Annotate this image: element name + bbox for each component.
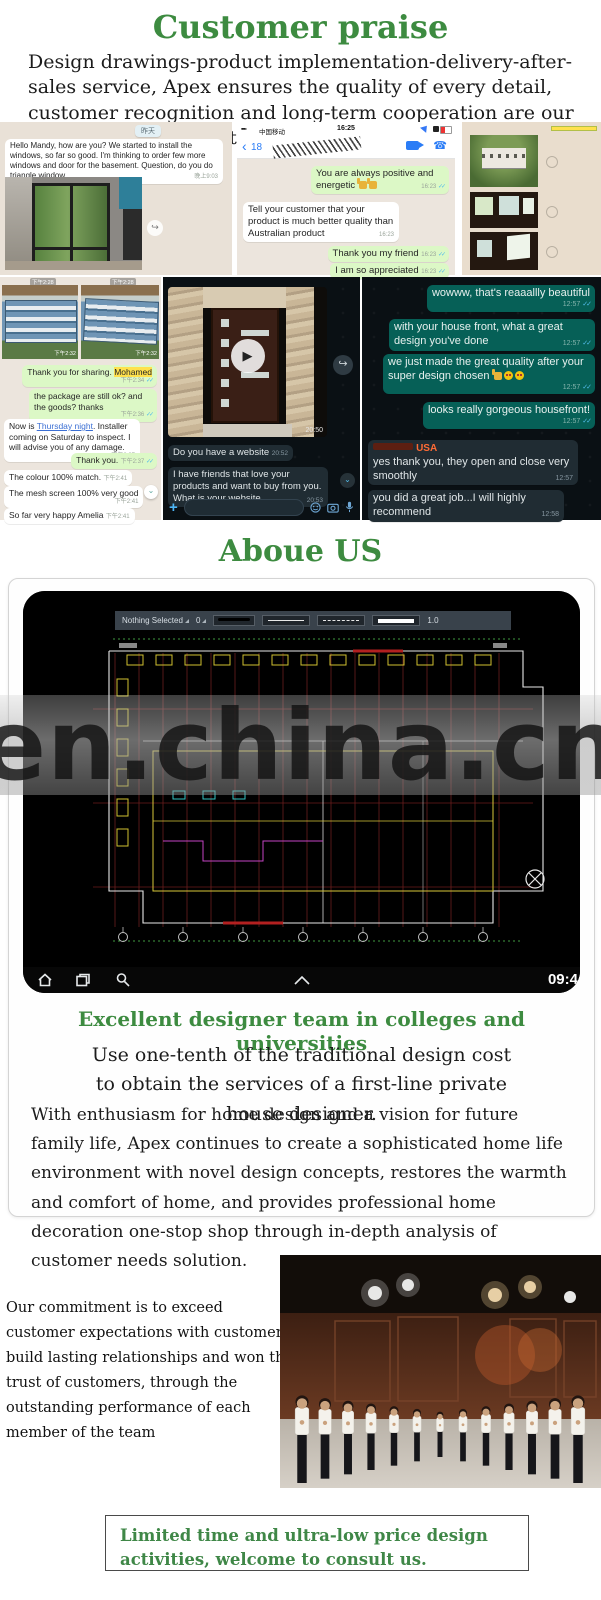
watermark-band: en.china.cn	[0, 695, 601, 795]
message-text: looks really gorgeous housefront!	[428, 404, 590, 416]
message-time: 12:57 ✓✓	[432, 301, 590, 310]
read-receipt-icon: ✓✓	[582, 384, 590, 391]
forward-icon[interactable]: ↪	[147, 220, 163, 236]
read-receipt-icon: ✓✓	[582, 301, 590, 308]
photo-timestamp: 下午2:32	[135, 349, 157, 357]
voice-call-icon[interactable]: ☎	[433, 139, 447, 152]
house	[482, 148, 526, 168]
message-text: Now is	[9, 421, 37, 431]
message-text: Tell your customer that your product is …	[248, 204, 393, 239]
highlighted-name: Mohamed	[114, 367, 152, 377]
promo-text: Limited time and ultra-low price design …	[120, 1524, 514, 1572]
chat-bubble-outgoing: wowww, that's reaaallly beautiful 12:57 …	[427, 285, 595, 312]
dropdown-triangle-icon	[185, 619, 189, 623]
interior-photo[interactable]	[470, 232, 538, 270]
message-text: I am so appreciated	[335, 265, 418, 276]
message-time: 20:52	[272, 450, 288, 457]
chat-bubble-outgoing: we just made the great quality after you…	[383, 354, 595, 394]
chat-screenshot-feedback: 下午2:28 下午2:28 下午2:32 下午2:32 Thank you fo…	[0, 277, 161, 520]
message-text: Thank you for sharing.	[27, 367, 114, 377]
scale-value: 1.0	[427, 616, 438, 625]
window	[499, 196, 519, 216]
status-time: 16:25	[337, 125, 355, 132]
linetype-dashed[interactable]	[317, 615, 365, 626]
signal-icon: ▪▪▪▫	[241, 126, 246, 133]
chat-screenshot-installation: 昨天 Hello Mandy, how are you? We started …	[0, 122, 232, 275]
message-time: 12:57 ✓✓	[563, 340, 590, 349]
wall	[5, 177, 32, 270]
download-spinner-icon[interactable]	[546, 156, 558, 168]
heart-eyes-emoji	[515, 371, 524, 380]
message-text: Thank you.	[76, 455, 118, 465]
message-time: 16:23 ✓✓	[421, 184, 444, 192]
solid-line	[268, 620, 304, 621]
windows	[482, 154, 526, 158]
chat-bubble-outgoing: Thank you for sharing. Mohamed 下午2:34 ✓✓	[22, 365, 157, 387]
video-call-icon[interactable]	[406, 141, 419, 150]
message-text: we just made the great quality after you…	[388, 356, 584, 382]
doorstep	[203, 424, 292, 438]
location-arrow-icon	[420, 123, 430, 133]
unread-count: 18	[251, 142, 262, 153]
message-text: Do you have a website	[173, 447, 269, 458]
video-lens	[419, 142, 424, 148]
interior-photo[interactable]	[470, 192, 538, 228]
message-time: 12:57 ✓✓	[388, 384, 590, 393]
message-time: 下午2:41	[106, 514, 130, 520]
highlighted-label	[551, 126, 597, 131]
chat-bubble-incoming: you did a great job...I will highly reco…	[368, 490, 564, 522]
message-time: 12:58	[541, 511, 559, 520]
home-icon[interactable]	[37, 972, 53, 988]
back-icon[interactable]: ‹	[242, 138, 247, 154]
commitment-paragraph: Our commitment is to exceed customer exp…	[6, 1296, 296, 1446]
window-frames-photo[interactable]: 下午2:32	[2, 285, 78, 359]
date-link[interactable]: Thursday night	[37, 421, 93, 431]
window	[523, 198, 534, 213]
clock-label: 09:4	[548, 971, 578, 988]
forward-icon[interactable]: ↪	[333, 355, 353, 375]
sender-name: USA	[416, 443, 437, 454]
dropdown-triangle-icon	[202, 619, 206, 623]
chat-bubble-incoming: USA yes thank you, they open and close v…	[368, 440, 578, 485]
glass-bar	[241, 330, 269, 336]
layer-dropdown[interactable]: 0	[196, 616, 206, 625]
chat-nav-bar: ‹ 18 ☎	[237, 137, 455, 159]
watermark-text: en.china.cn	[0, 695, 601, 795]
glass-slits	[221, 319, 230, 408]
message-text: Hello Mandy, how are you? We started to …	[10, 141, 213, 180]
lintel	[203, 287, 286, 308]
message-time: 下午2:41	[9, 499, 138, 507]
color-swatch[interactable]	[213, 615, 255, 626]
redacted-sender-name	[373, 443, 413, 450]
camera-icon[interactable]	[327, 502, 339, 513]
linetype-solid[interactable]	[262, 615, 310, 626]
glass-door	[32, 183, 109, 267]
message-input[interactable]	[184, 499, 304, 516]
read-receipt-icon: ✓✓	[146, 412, 152, 418]
chat-bubble-incoming: So far very happy Amelia 下午2:41	[4, 508, 135, 524]
chat-bubble-incoming: Do you have a website 20:52	[168, 445, 293, 461]
message-time: 16:23	[379, 232, 394, 240]
message-time: 16:23 ✓✓	[421, 269, 444, 275]
thumbs-up-emoji	[359, 181, 367, 189]
lineweight[interactable]	[372, 615, 420, 626]
cabinet	[119, 177, 142, 209]
chat-screenshot-house-photos	[462, 122, 601, 275]
window	[477, 240, 492, 257]
stone-pillar	[286, 287, 315, 437]
message-text: So far very happy Amelia	[9, 510, 104, 520]
download-spinner-icon[interactable]	[546, 246, 558, 258]
read-receipt-icon: ✓✓	[438, 252, 444, 258]
dashed-line	[323, 620, 359, 621]
photo-timestamp: 下午2:32	[54, 349, 76, 357]
android-nav-bar: 09:4	[23, 967, 580, 993]
message-time: 16:23 ✓✓	[421, 252, 444, 258]
phone-status-bar: ▪▪▪▫ 中国移动 16:25	[237, 122, 455, 137]
orientation-lock-icon	[433, 126, 439, 132]
carrier-label: 中国移动	[259, 126, 285, 136]
chat-bubble-outgoing: Thank you my friend 16:23 ✓✓	[328, 246, 449, 262]
mic-icon[interactable]	[345, 501, 354, 513]
house-photo[interactable]	[470, 135, 538, 187]
chat-bubble-outgoing: You are always positive and energetic 16…	[311, 166, 449, 194]
chat-bubble-incoming: The colour 100% match. 下午2:41	[4, 470, 132, 486]
heart-eyes-emoji	[504, 371, 513, 380]
thumbs-up-emoji	[494, 372, 502, 380]
glass-bar	[241, 372, 269, 378]
page-title: Customer praise	[0, 8, 601, 46]
door-mullion	[70, 186, 73, 264]
stacked-frames	[83, 298, 159, 345]
appliance	[123, 209, 142, 260]
battery-level	[441, 127, 445, 133]
chat-bubble-outgoing: looks really gorgeous housefront! 12:57 …	[423, 402, 595, 429]
sticker-icon[interactable]	[310, 502, 321, 513]
read-receipt-icon: ✓✓	[582, 340, 590, 347]
message-time: 12:57 ✓✓	[428, 418, 590, 427]
read-receipt-icon: ✓✓	[438, 269, 444, 275]
installed-door-photo[interactable]	[5, 177, 142, 270]
scroll-down-icon[interactable]: ⌄	[340, 473, 355, 488]
team-photo	[280, 1255, 601, 1488]
redacted-contact-name	[273, 136, 362, 158]
door-video-thumbnail[interactable]: ▶ 20:50	[168, 287, 327, 437]
about-title: Aboue US	[0, 534, 601, 569]
chat-screenshot-usa-customer: wowww, that's reaaallly beautiful 12:57 …	[362, 277, 601, 520]
message-time: 下午2:37 ✓✓	[121, 459, 152, 465]
battery-icon	[440, 126, 452, 134]
window	[475, 197, 493, 214]
product-description-page: Customer praise Design drawings-product …	[0, 0, 601, 1600]
door-rail	[35, 247, 106, 250]
read-receipt-icon: ✓✓	[582, 418, 590, 425]
promo-box: Limited time and ultra-low price design …	[105, 1515, 529, 1571]
video-timestamp: 20:50	[305, 427, 323, 434]
message-text: with your house front, what a great desi…	[394, 321, 563, 347]
message-text: yes thank you, they open and close very …	[373, 456, 569, 482]
chat-bubble-outgoing: with your house front, what a great desi…	[389, 319, 595, 351]
cad-toolbar: Nothing Selected 0 1.0	[115, 611, 511, 630]
chat-screenshot-praise: ▪▪▪▫ 中国移动 16:25 ‹ 18 ☎ You are always po…	[237, 122, 455, 275]
message-text: wowww, that's reaaallly beautiful	[432, 287, 590, 299]
chat-bubble-outgoing: Thank you. 下午2:37 ✓✓	[71, 453, 157, 469]
read-receipt-icon: ✓✓	[438, 184, 444, 190]
download-spinner-icon[interactable]	[546, 206, 558, 218]
stacked-frames	[5, 300, 77, 343]
chevron-up-icon[interactable]	[292, 974, 312, 986]
message-text: the package are still ok? and the goods?…	[34, 391, 142, 412]
stone-pillar	[168, 287, 203, 437]
chat-bubble-outgoing: the package are still ok? and the goods?…	[29, 389, 157, 422]
scroll-down-icon[interactable]: ⌄	[144, 485, 158, 499]
message-time: 晚上9:03	[194, 174, 218, 182]
thick-line	[378, 619, 414, 623]
floor	[5, 261, 142, 270]
chat-date-badge: 昨天	[135, 125, 161, 137]
read-receipt-icon: ✓✓	[146, 459, 152, 465]
chat-bubble-incoming: Tell your customer that your product is …	[243, 202, 399, 242]
selection-dropdown[interactable]: Nothing Selected	[122, 616, 189, 625]
window-frames-photo[interactable]: 下午2:32	[81, 285, 159, 359]
message-time: 下午2:41	[104, 476, 128, 482]
swatch-black	[218, 618, 250, 621]
recents-icon[interactable]	[75, 972, 91, 988]
message-text: The mesh screen 100% very good	[9, 488, 138, 498]
message-text: Thank you my friend	[333, 248, 419, 259]
read-receipt-icon: ✓✓	[146, 378, 152, 384]
play-icon[interactable]: ▶	[231, 339, 265, 373]
message-time: 下午2:34 ✓✓	[27, 378, 152, 386]
attach-plus-icon[interactable]: +	[169, 499, 178, 516]
search-icon[interactable]	[115, 972, 131, 988]
about-card: Nothing Selected 0 1.0 09:4 Excellent de…	[8, 578, 595, 1217]
thumbs-up-emoji	[369, 181, 377, 189]
message-time: 12:57	[555, 475, 573, 484]
about-body: With enthusiasm for home design and a vi…	[31, 1101, 571, 1276]
chat-screenshot-website: ▶ 20:50 ↪ Do you have a website 20:52 I …	[163, 277, 360, 520]
open-window	[507, 234, 530, 260]
message-text: The colour 100% match.	[9, 472, 101, 482]
chat-bubble-incoming: The mesh screen 100% very good 下午2:41	[4, 486, 143, 508]
message-text: you did a great job...I will highly reco…	[373, 492, 526, 518]
message-input-bar: +	[163, 496, 360, 518]
